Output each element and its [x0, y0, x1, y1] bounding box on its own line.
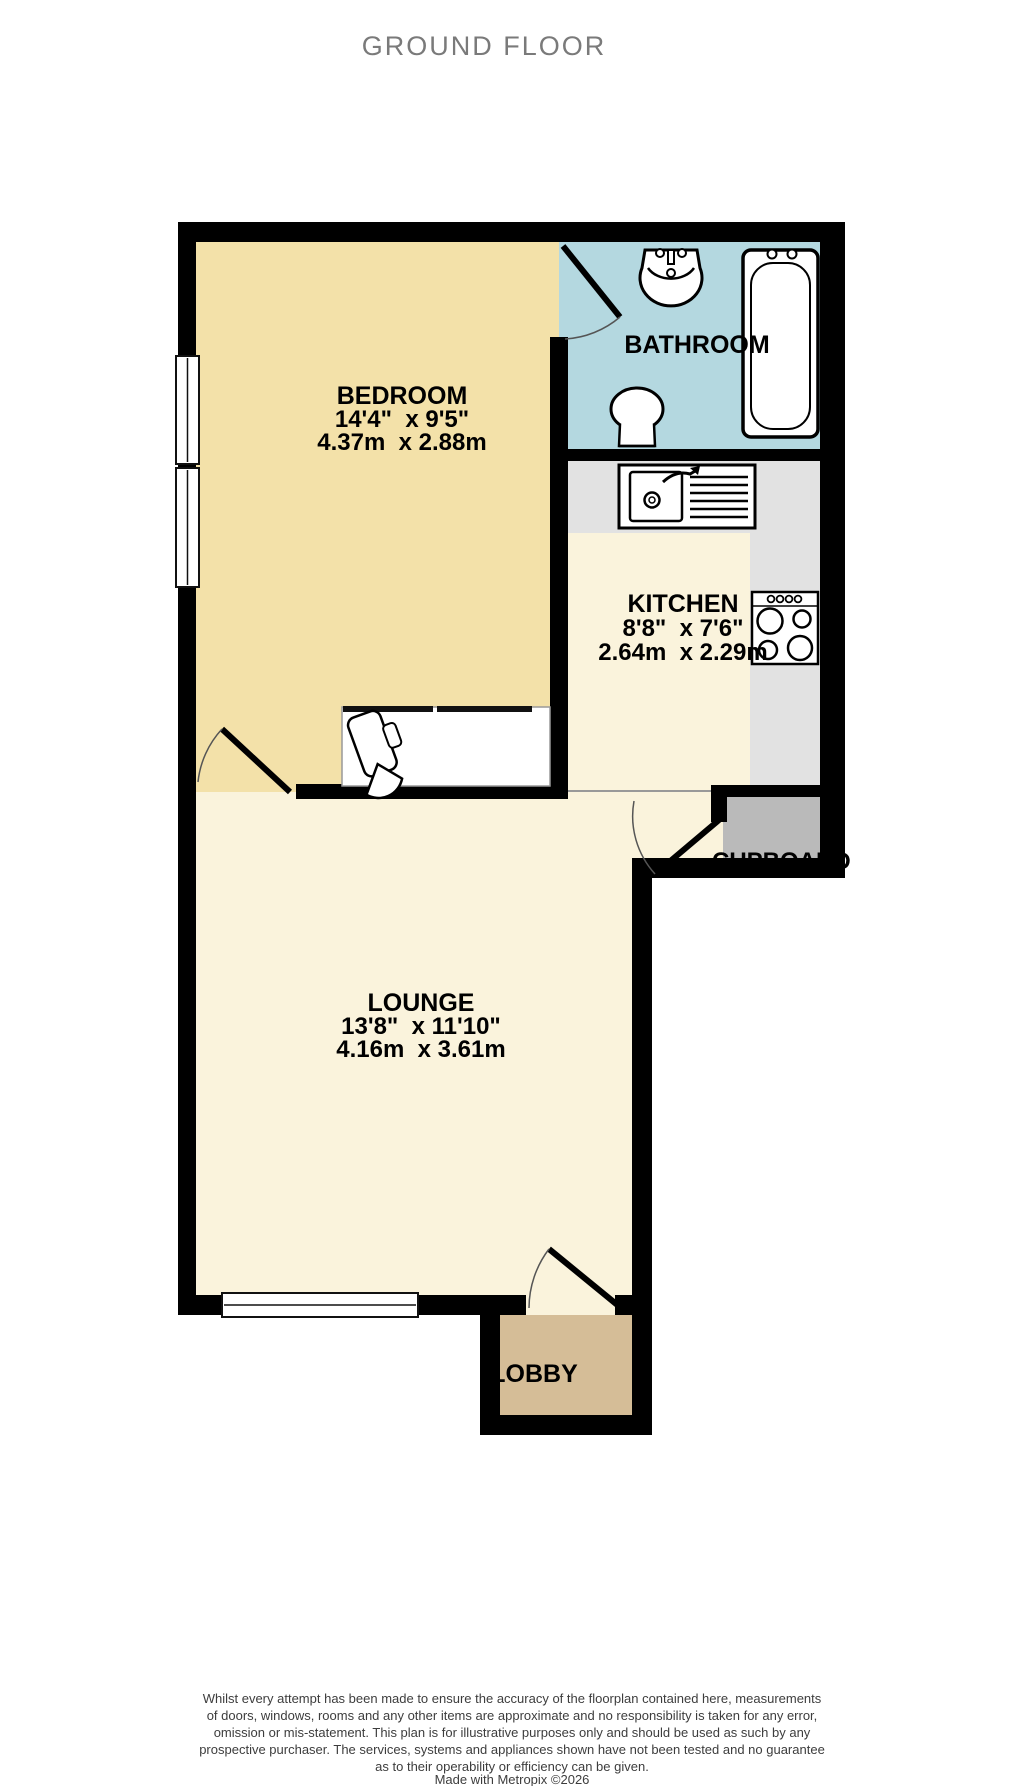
kitchen-dims-imperial: 8'8" x 7'6" — [623, 615, 744, 642]
wall-right-upper — [820, 222, 845, 878]
bedroom-dims-metric: 4.37m x 2.88m — [317, 429, 486, 456]
footer: Whilst every attempt has been made to en… — [199, 1691, 825, 1786]
bedroom-window — [176, 356, 199, 587]
wall-divider-vertical — [550, 337, 568, 799]
sink-basin — [630, 472, 682, 521]
disclaimer-line: omission or mis-statement. This plan is … — [214, 1725, 811, 1740]
kitchen-label: KITCHEN — [627, 590, 738, 618]
bath-tap — [788, 250, 797, 259]
lounge-dims-metric: 4.16m x 3.61m — [336, 1036, 505, 1063]
basin-tap — [678, 249, 686, 257]
disclaimer-line: prospective purchaser. The services, sys… — [199, 1742, 825, 1757]
wall-cupboard-top — [711, 785, 845, 797]
wall-bathroom-kitchen — [550, 449, 845, 461]
toilet-tank — [619, 424, 655, 446]
kitchen-sink-icon — [619, 465, 755, 528]
wall-lobby-bottom — [480, 1415, 652, 1435]
floorplan-page: GROUND FLOOR — [0, 0, 1024, 1786]
disclaimer-line: Whilst every attempt has been made to en… — [203, 1691, 822, 1706]
credit-line: Made with Metropix ©2026 — [435, 1772, 590, 1786]
floor-title: GROUND FLOOR — [362, 31, 607, 61]
wall-right-lower — [632, 878, 652, 1435]
bath-tap — [768, 250, 777, 259]
bathroom-label: BATHROOM — [624, 331, 769, 359]
basin-icon — [640, 249, 702, 306]
basin-tap — [656, 249, 664, 257]
lobby-label: LOBBY — [490, 1360, 578, 1388]
desk-edge — [343, 706, 433, 712]
disclaimer-line: of doors, windows, rooms and any other i… — [207, 1708, 818, 1723]
floorplan-canvas: GROUND FLOOR — [0, 0, 1024, 1786]
basin-spout — [668, 250, 674, 264]
toilet-icon — [611, 388, 663, 446]
wall-top — [178, 222, 845, 242]
cupboard-label: CUPBOARD — [712, 848, 851, 875]
toilet-bowl — [611, 388, 663, 430]
lounge-window — [222, 1293, 418, 1317]
kitchen-dims-metric: 2.64m x 2.29m — [598, 639, 767, 666]
desk-edge — [437, 706, 532, 712]
